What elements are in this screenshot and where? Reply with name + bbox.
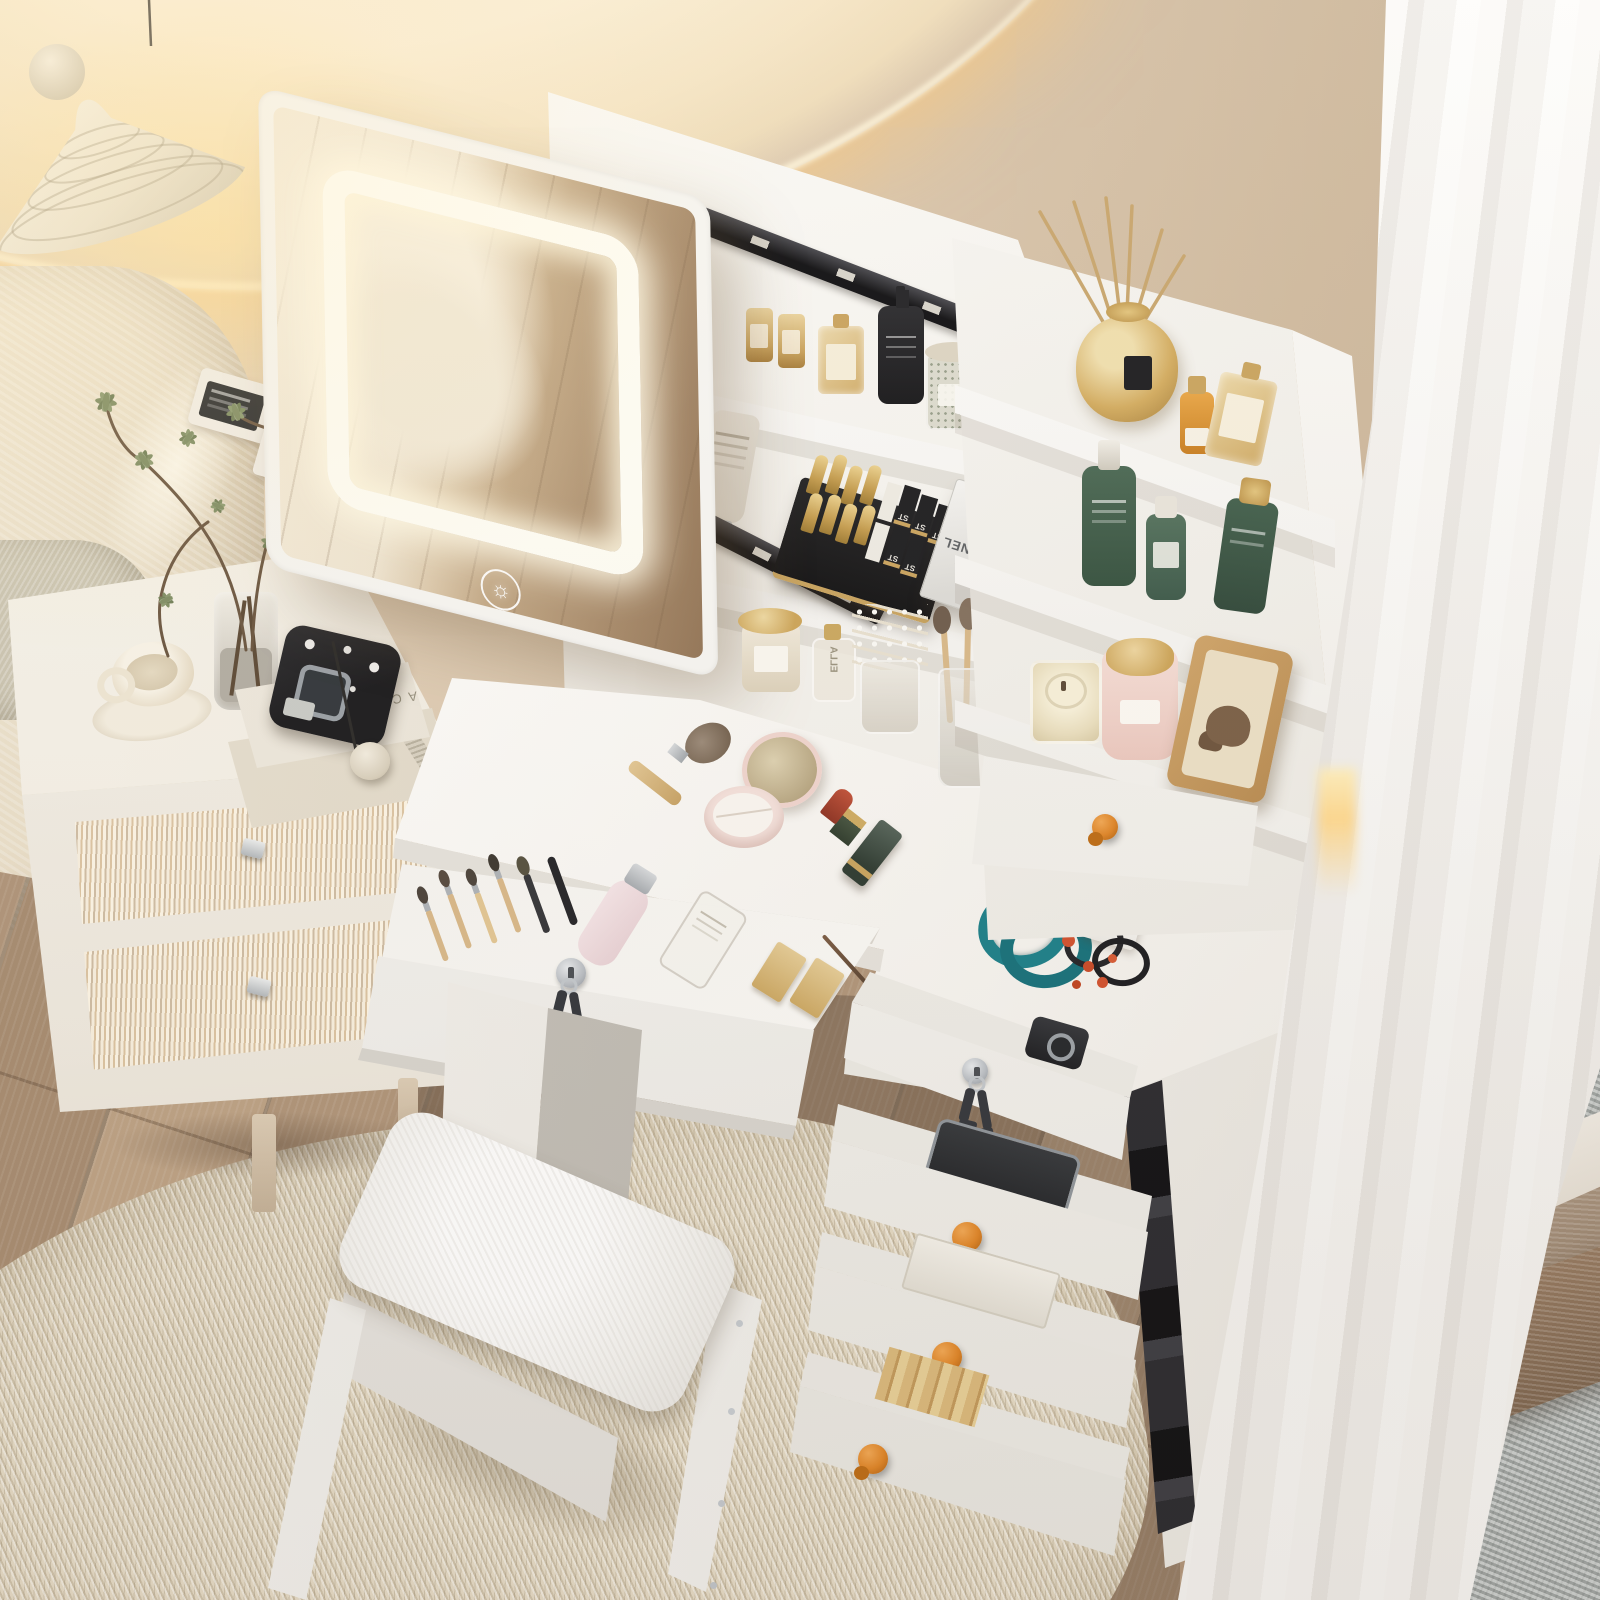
led-ring xyxy=(322,163,644,582)
black-pump-bottle xyxy=(878,306,924,404)
stool-screws xyxy=(736,1320,743,1327)
bedroom-vanity-scene: A CENTURY xyxy=(0,0,1600,1600)
mirror-glass: ☼ xyxy=(273,105,703,661)
swab-cup xyxy=(860,660,920,734)
hutch-drawer-knob xyxy=(1092,814,1118,840)
ella-bottle: ELLA xyxy=(812,638,856,702)
nightstand-leg xyxy=(252,1114,276,1212)
gold-mini-bottle xyxy=(746,308,773,362)
cabinet-drawer4-knob xyxy=(858,1444,888,1474)
gold-perfume-bottle xyxy=(818,326,864,394)
lamp-wire xyxy=(149,0,151,46)
touch-control-icon: ☼ xyxy=(480,565,521,615)
green-dropper-bottle xyxy=(1146,514,1186,600)
lamp-shade xyxy=(0,60,257,285)
green-pump-bottle xyxy=(1082,466,1136,586)
gold-mini-bottle xyxy=(778,314,805,368)
pink-cream-jar xyxy=(1102,648,1178,760)
warm-light-strip xyxy=(1318,768,1356,896)
scented-candle xyxy=(1030,660,1102,744)
pearl-incense-holder xyxy=(350,742,390,780)
lamp-ball xyxy=(29,44,85,100)
diffuser-label xyxy=(1124,356,1152,390)
compact-cushion-base xyxy=(704,786,784,848)
cream-jar xyxy=(742,622,800,692)
